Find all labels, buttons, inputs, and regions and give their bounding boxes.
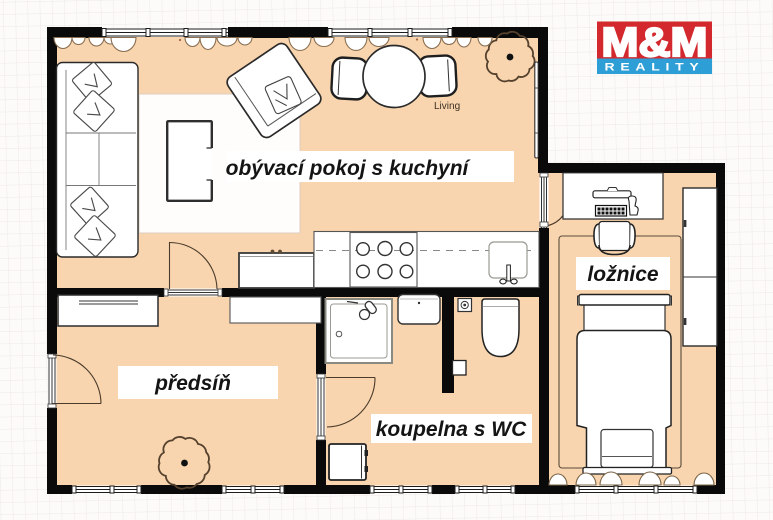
svg-text:Living: Living: [434, 101, 460, 112]
svg-text:M&M: M&M: [602, 19, 708, 65]
svg-text:REALITY: REALITY: [605, 62, 705, 74]
svg-text:předsíň: předsíň: [154, 372, 231, 395]
svg-text:koupelna s WC: koupelna s WC: [376, 418, 527, 441]
svg-text:obývací pokoj s kuchyní: obývací pokoj s kuchyní: [226, 157, 472, 180]
svg-text:ložnice: ložnice: [587, 263, 659, 286]
